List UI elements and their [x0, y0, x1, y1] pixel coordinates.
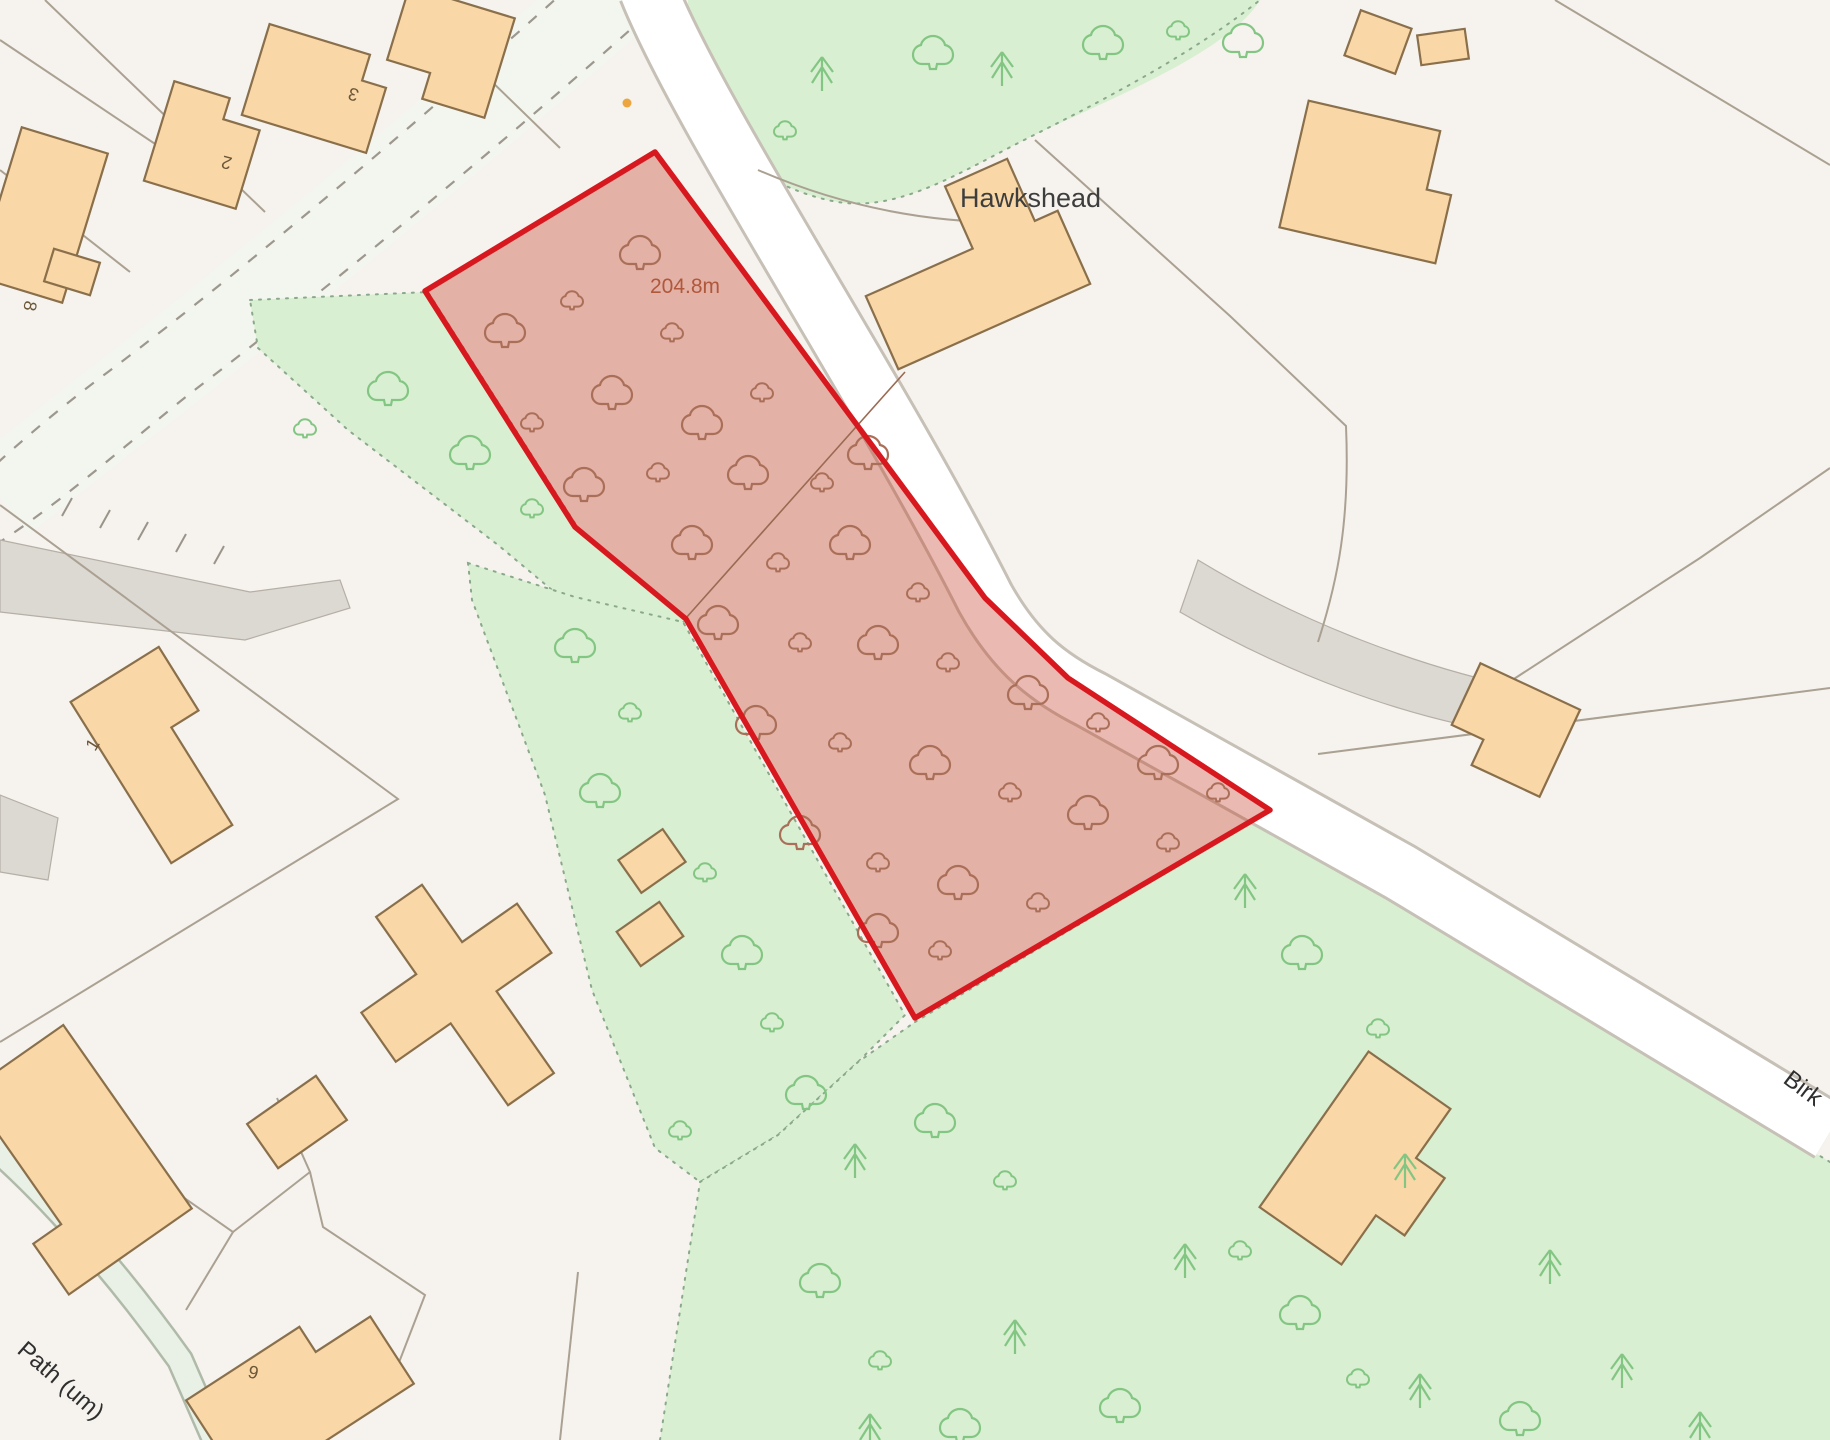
road-marker-dot	[623, 99, 632, 108]
spot-height-label: 204.8m	[650, 275, 720, 298]
shed-top-right-2	[1417, 29, 1469, 65]
map-viewport[interactable]: Hawkshead 204.8m Path (um) Birk 3 2 8 1 …	[0, 0, 1830, 1440]
map-canvas[interactable]: Hawkshead 204.8m Path (um) Birk 3 2 8 1 …	[0, 0, 1830, 1440]
place-label: Hawkshead	[960, 183, 1101, 213]
